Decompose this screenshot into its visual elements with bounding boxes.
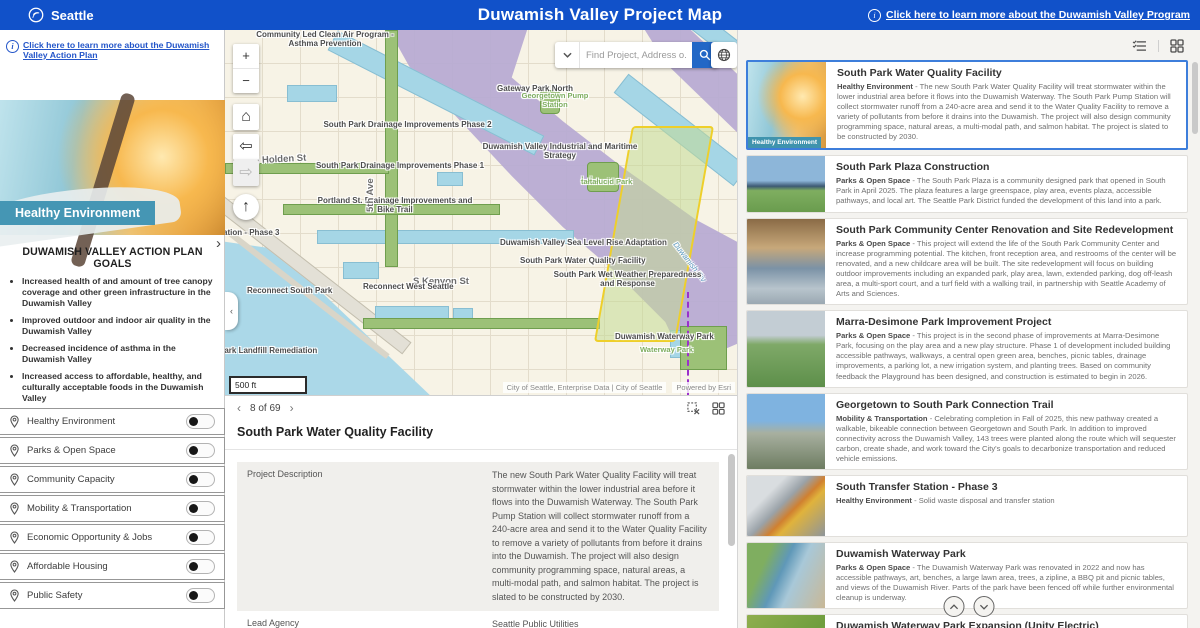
map-pin-icon <box>9 589 20 602</box>
divider <box>1158 40 1159 52</box>
carousel-image: Healthy Environment <box>0 100 225 235</box>
toggle-knob <box>189 533 198 542</box>
map-pin-icon <box>9 473 20 486</box>
detail-table: Project Description The new South Park W… <box>237 462 719 628</box>
project-card-title: South Park Water Quality Facility <box>837 67 1176 79</box>
scroll-down-button[interactable] <box>974 596 995 617</box>
action-plan-link-row: i Click here to learn more about the Duw… <box>0 30 224 60</box>
category-label: Community Capacity <box>27 474 186 485</box>
category-label: Affordable Housing <box>27 561 186 572</box>
program-link-row: i Click here to learn more about the Duw… <box>868 9 1190 22</box>
project-area-blue <box>287 85 337 102</box>
chevron-down-icon <box>563 52 572 58</box>
greenway-street <box>385 30 398 267</box>
category-parks-open-space[interactable]: Parks & Open Space <box>0 437 225 464</box>
seattle-emblem-icon <box>28 7 44 23</box>
project-card-title: Georgetown to South Park Connection Trai… <box>836 399 1177 411</box>
goals-section: DUWAMISH VALLEY ACTION PLAN GOALS Increa… <box>0 244 225 416</box>
goal-item: Improved outdoor and indoor air quality … <box>22 315 216 337</box>
goal-item: Increased health of and amount of tree c… <box>22 276 216 309</box>
project-thumbnail <box>747 394 825 469</box>
category-toggle[interactable] <box>186 588 215 603</box>
powered-by-esri: Powered by Esri <box>672 382 735 393</box>
greenway-street <box>363 318 600 329</box>
category-toggle[interactable] <box>186 443 215 458</box>
sidebar-collapse-tab[interactable]: ‹ <box>225 292 238 330</box>
detail-row-label: Lead Agency <box>237 611 482 628</box>
project-category: Parks & Open Space <box>836 563 910 572</box>
search-input[interactable] <box>580 42 692 68</box>
project-card[interactable]: Marra-Desimone Park Improvement Project … <box>746 310 1188 387</box>
toggle-knob <box>189 446 198 455</box>
filter-list-icon[interactable] <box>1132 40 1147 52</box>
search-dropdown-button[interactable] <box>555 42 580 68</box>
detail-header-icons <box>687 402 725 415</box>
goal-item: Decreased incidence of asthma in the Duw… <box>22 343 216 365</box>
category-economic-opportunity[interactable]: Economic Opportunity & Jobs <box>0 524 225 551</box>
category-toggle[interactable] <box>186 414 215 429</box>
toggle-knob <box>189 417 198 426</box>
project-card-title: South Transfer Station - Phase 3 <box>836 481 1177 493</box>
toggle-knob <box>189 475 198 484</box>
category-label: Mobility & Transportation <box>27 503 186 514</box>
project-card[interactable]: South Park Community Center Renovation a… <box>746 218 1188 306</box>
project-card[interactable]: South Transfer Station - Phase 3 Healthy… <box>746 475 1188 537</box>
app-header: Seattle Duwamish Valley Project Map i Cl… <box>0 0 1200 30</box>
clear-selection-icon[interactable] <box>687 402 700 415</box>
map-pin-icon <box>9 415 20 428</box>
project-thumbnail <box>747 219 825 305</box>
project-category: Parks & Open Space <box>836 239 910 248</box>
category-healthy-environment[interactable]: Healthy Environment <box>0 408 225 435</box>
project-category: Healthy Environment <box>837 82 913 91</box>
project-thumbnail <box>747 543 825 608</box>
zoom-out-button[interactable]: − <box>233 68 259 93</box>
detail-scrollbar[interactable] <box>728 454 735 546</box>
map-label: Portland St. Drainage Improvements and B… <box>310 196 480 215</box>
home-button[interactable]: ⌂ <box>233 104 259 130</box>
project-thumbnail <box>747 156 825 212</box>
forward-button[interactable]: ⇨ <box>233 160 259 186</box>
toggle-knob <box>189 562 198 571</box>
project-card-title: South Park Community Center Renovation a… <box>836 224 1177 236</box>
category-public-safety[interactable]: Public Safety <box>0 582 225 609</box>
category-toggle[interactable] <box>186 501 215 516</box>
toggle-knob <box>189 504 198 513</box>
project-thumbnail: Parks & Open Spaces <box>747 615 825 628</box>
zoom-controls: + − <box>233 44 259 93</box>
list-scrollbar[interactable] <box>1192 62 1198 134</box>
map-search-bar <box>555 42 718 68</box>
info-icon: i <box>868 9 881 22</box>
map-label: South Park Water Quality Facility <box>520 256 646 265</box>
category-mobility-transportation[interactable]: Mobility & Transportation <box>0 495 225 522</box>
detail-header: ‹ 8 of 69 › <box>225 396 737 420</box>
program-link[interactable]: Click here to learn more about the Duwam… <box>886 9 1190 21</box>
project-category: Parks & Open Space <box>836 176 910 185</box>
thumbnail-badge: Healthy Environment <box>748 137 821 148</box>
detail-row-value: The new South Park Water Quality Facilit… <box>482 462 719 611</box>
basemap-globe-icon <box>717 48 731 62</box>
detail-row: Lead Agency Seattle Public Utilities <box>237 611 719 628</box>
project-card-title: Duwamish Waterway Park <box>836 548 1177 560</box>
detail-row-label: Project Description <box>237 462 482 611</box>
goal-item: Increased access to affordable, healthy,… <box>22 371 216 404</box>
category-toggle[interactable] <box>186 472 215 487</box>
project-category: Parks & Open Space <box>836 331 910 340</box>
action-plan-link[interactable]: Click here to learn more about the Duwam… <box>23 40 218 60</box>
map-pin-icon <box>9 502 20 515</box>
map-label: Park Landfill Remediation <box>225 346 317 355</box>
scroll-up-button[interactable] <box>944 596 965 617</box>
map-label: Duwamish Waterway Park <box>615 332 714 341</box>
zoom-in-button[interactable]: + <box>233 44 259 68</box>
detail-title: South Park Water Quality Facility <box>225 420 737 450</box>
map-label: South Park Drainage Improvements Phase 1 <box>310 161 490 170</box>
seattle-logo: Seattle <box>28 7 94 23</box>
list-scroll-buttons <box>944 596 995 617</box>
project-description: - Solid waste disposal and transfer stat… <box>914 496 1055 505</box>
map-label: Station - Phase 3 <box>225 228 279 237</box>
category-affordable-housing[interactable]: Affordable Housing <box>0 553 225 580</box>
info-icon: i <box>6 40 19 53</box>
detail-row: Project Description The new South Park W… <box>237 462 719 611</box>
boundary-dashed-line <box>687 292 689 395</box>
project-card-title: Marra-Desimone Park Improvement Project <box>836 316 1177 328</box>
map-park-label: Georgetown Pump Station <box>520 92 590 110</box>
paddle-graphic <box>70 92 136 268</box>
project-card-title: Duwamish Waterway Park Expansion (Unity … <box>836 620 1177 628</box>
category-label: Public Safety <box>27 590 186 601</box>
category-label: Healthy Environment <box>27 416 186 427</box>
project-category: Healthy Environment <box>836 496 912 505</box>
map-scale: 500 ft <box>229 376 307 394</box>
map-park-label: Waterway Park <box>640 346 693 355</box>
map-pin-icon <box>9 560 20 573</box>
back-button[interactable]: ⇦ <box>233 134 259 160</box>
project-card-selected[interactable]: Healthy Environment South Park Water Qua… <box>746 60 1188 150</box>
project-card-list: Healthy Environment South Park Water Qua… <box>746 60 1188 628</box>
project-card[interactable]: Georgetown to South Park Connection Trai… <box>746 393 1188 470</box>
next-record-button[interactable]: › <box>290 401 294 415</box>
project-list-panel: Healthy Environment South Park Water Qua… <box>737 30 1200 628</box>
project-card-title: South Park Plaza Construction <box>836 161 1177 173</box>
map-label: Duwamish Valley Sea Level Rise Adaptatio… <box>500 238 667 247</box>
category-toggle-list: Healthy Environment Parks & Open Space C… <box>0 408 225 611</box>
record-counter: 8 of 69 <box>250 403 281 414</box>
list-panel-icons <box>1132 39 1184 53</box>
sidebar: i Click here to learn more about the Duw… <box>0 30 225 628</box>
grid-view-icon[interactable] <box>1170 39 1184 53</box>
basemap-button[interactable] <box>711 42 737 68</box>
project-detail-panel: ‹ 8 of 69 › South Park Water Quality Fac… <box>225 395 737 628</box>
prev-record-button[interactable]: ‹ <box>237 401 241 415</box>
project-category: Mobility & Transportation <box>836 414 928 423</box>
map-pin-icon <box>9 444 20 457</box>
map-attribution: City of Seattle, Enterprise Data | City … <box>503 382 735 393</box>
map-label: South Park Wet Weather Preparedness and … <box>550 270 705 289</box>
project-thumbnail <box>747 311 825 386</box>
compass-button[interactable]: ↑ <box>233 194 259 220</box>
goals-heading: DUWAMISH VALLEY ACTION PLAN GOALS <box>9 246 216 270</box>
category-label: Parks & Open Space <box>27 445 186 456</box>
map-label: Duwamish Valley Industrial and Maritime … <box>475 142 645 161</box>
category-label: Economic Opportunity & Jobs <box>27 532 186 543</box>
map-label: South Park Drainage Improvements Phase 2 <box>320 120 495 129</box>
project-area-blue <box>437 172 463 186</box>
detail-row-value: Seattle Public Utilities <box>482 611 719 628</box>
chevron-up-icon <box>950 604 959 610</box>
attribution-text: City of Seattle, Enterprise Data | City … <box>503 382 667 393</box>
toggle-knob <box>189 591 198 600</box>
project-area-blue <box>343 262 379 279</box>
chevron-down-icon <box>980 604 989 610</box>
logo-text: Seattle <box>51 8 94 23</box>
category-toggle[interactable] <box>186 530 215 545</box>
project-thumbnail: Healthy Environment <box>748 62 826 148</box>
category-community-capacity[interactable]: Community Capacity <box>0 466 225 493</box>
map-pin-icon <box>9 531 20 544</box>
project-thumbnail <box>747 476 825 536</box>
goals-list: Increased health of and amount of tree c… <box>9 276 216 404</box>
street-label: 5th Ave <box>365 178 376 212</box>
category-toggle[interactable] <box>186 559 215 574</box>
map-label: Community Led Clean Air Program - Asthma… <box>245 30 405 49</box>
map-park-label: t̓ałt̓ałucid Park <box>581 178 632 187</box>
map-label: Reconnect South Park <box>247 286 332 295</box>
map-label: Reconnect West Seattle <box>363 282 454 291</box>
search-icon <box>699 49 711 61</box>
project-card[interactable]: South Park Plaza Construction Parks & Op… <box>746 155 1188 213</box>
grid-view-icon[interactable] <box>712 402 725 415</box>
map-canvas[interactable]: Community Led Clean Air Program - Asthma… <box>225 30 737 395</box>
carousel-image-label: Healthy Environment <box>0 201 155 225</box>
